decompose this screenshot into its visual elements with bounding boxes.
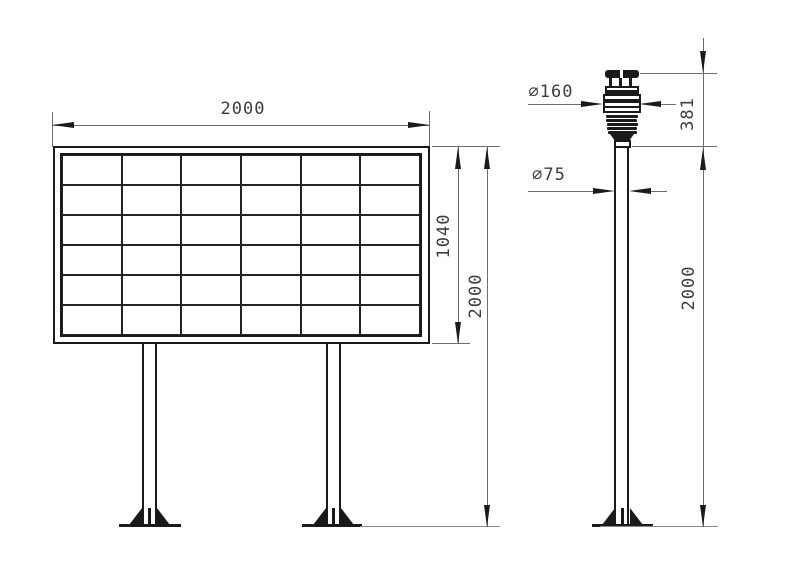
grid-cell <box>301 275 361 305</box>
sensor-band-line <box>604 106 640 108</box>
arrowhead-right-icon <box>593 188 615 194</box>
sensor-band-line <box>606 90 638 92</box>
dimension-line <box>487 146 488 527</box>
sensor-band <box>603 94 641 101</box>
grid-cell <box>122 215 182 245</box>
grid-cell <box>360 215 420 245</box>
extension-line <box>640 73 717 74</box>
grid-cell <box>62 245 122 275</box>
grid-cell <box>360 185 420 215</box>
arrowhead-up-icon <box>700 148 706 170</box>
dimension-line <box>458 146 459 344</box>
anchor-bolt <box>621 508 624 525</box>
grid-cell <box>122 305 182 335</box>
sensor-post <box>609 78 612 86</box>
extension-line <box>52 112 53 147</box>
grid-cell <box>241 275 301 305</box>
anchor-bolt <box>148 508 151 525</box>
arrowhead-up-icon <box>484 147 490 169</box>
arrowhead-left-icon <box>639 101 661 107</box>
sensor-post <box>619 78 622 86</box>
grid-cell <box>301 185 361 215</box>
panel-grid <box>60 153 422 337</box>
extension-line <box>632 146 717 147</box>
arrowhead-down-icon <box>700 505 706 527</box>
panel-height-label: 1040 <box>434 201 454 271</box>
grid-cell <box>181 185 241 215</box>
grid-cell <box>360 155 420 185</box>
technical-drawing: 2000 1040 2000 <box>0 0 800 563</box>
gusset <box>630 508 643 525</box>
pole-height-label: 2000 <box>679 253 699 323</box>
dimension-line <box>651 191 667 192</box>
grid-cell <box>241 245 301 275</box>
board-leg-left <box>142 344 157 525</box>
extension-line <box>432 343 470 344</box>
radiation-shield-ring <box>606 119 637 122</box>
grid-cell <box>62 215 122 245</box>
gusset <box>602 508 615 525</box>
dimension-line <box>528 191 593 192</box>
grid-cell <box>360 275 420 305</box>
arrowhead-down-icon <box>484 505 490 527</box>
sensor-post <box>629 78 632 86</box>
extension-line <box>429 111 430 147</box>
grid-cell <box>360 305 420 335</box>
grid-cell <box>301 305 361 335</box>
arrowhead-right-icon <box>581 101 603 107</box>
dimension-line <box>52 125 430 126</box>
sensor-diameter-label: ∅160 <box>521 82 581 102</box>
grid-cell <box>122 275 182 305</box>
pole-diameter-label: ∅75 <box>519 165 579 185</box>
arrowhead-down-icon <box>455 322 461 344</box>
gusset <box>313 508 326 525</box>
radiation-shield-ring <box>607 127 637 130</box>
arrowhead-down-icon <box>700 51 706 73</box>
board-width-label: 2000 <box>213 99 273 119</box>
board-leg-right <box>326 344 341 525</box>
grid-cell <box>241 155 301 185</box>
grid-cell <box>181 305 241 335</box>
sensor-cap-split <box>620 70 623 78</box>
gusset <box>157 508 170 525</box>
grid-cell <box>241 215 301 245</box>
anchor-bolt <box>332 508 335 525</box>
grid-cell <box>62 155 122 185</box>
grid-cell <box>122 245 182 275</box>
grid-cell <box>301 215 361 245</box>
board-total-height-label: 2000 <box>466 261 486 331</box>
radiation-shield-ring <box>606 115 638 118</box>
grid-cell <box>241 305 301 335</box>
ground-line <box>360 526 500 527</box>
grid-cell <box>301 245 361 275</box>
dimension-line <box>528 104 581 105</box>
gusset <box>341 508 354 525</box>
sensor-pole <box>614 147 629 525</box>
grid-cell <box>181 245 241 275</box>
grid-cell <box>181 215 241 245</box>
dimension-line <box>661 104 676 105</box>
grid-cell <box>360 245 420 275</box>
grid-cell <box>181 275 241 305</box>
dimension-line <box>703 38 704 527</box>
grid-cell <box>62 185 122 215</box>
arrowhead-left-icon <box>52 122 74 128</box>
grid-cell <box>62 275 122 305</box>
arrowhead-up-icon <box>455 147 461 169</box>
grid-cell <box>301 155 361 185</box>
sensor-height-label: 381 <box>678 79 698 149</box>
arrowhead-right-icon <box>408 122 430 128</box>
gusset <box>129 508 142 525</box>
grid-cell <box>122 155 182 185</box>
grid-cell <box>62 305 122 335</box>
grid-cell <box>181 155 241 185</box>
arrowhead-left-icon <box>629 188 651 194</box>
grid-cell <box>241 185 301 215</box>
grid-cell <box>122 185 182 215</box>
radiation-shield-ring <box>607 123 638 126</box>
